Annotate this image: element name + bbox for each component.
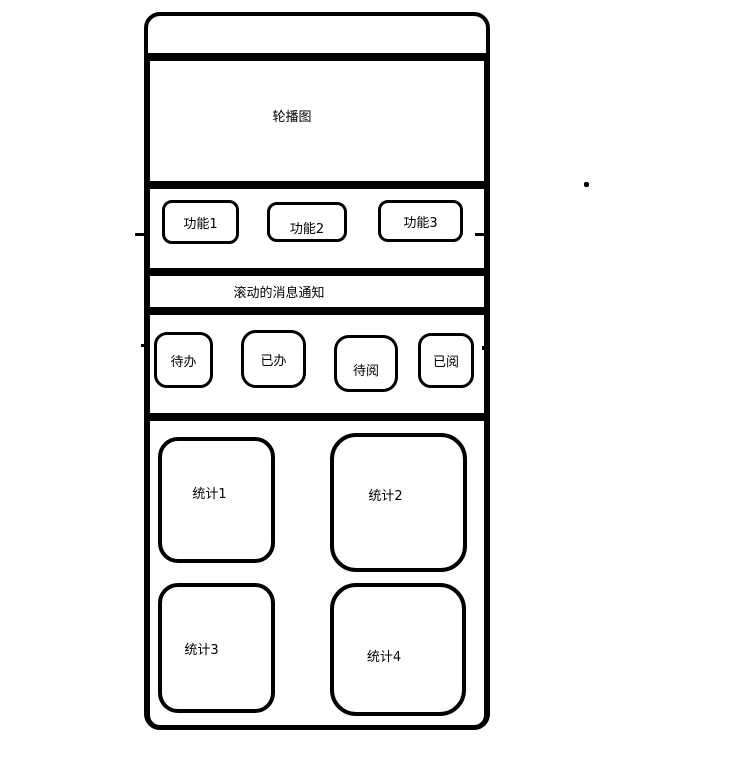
task-tab-read[interactable]: 已阅 [418,333,474,388]
wireframe-canvas: 轮播图 功能1 功能2 功能3 滚动的消息通知 待办 已办 待阅 已阅 统计1 … [0,0,739,768]
task-tab-done[interactable]: 已办 [241,330,306,388]
notice-label: 滚动的消息通知 [233,282,324,301]
stray-dot [584,182,589,187]
task-tab-done-label: 已办 [260,350,286,369]
task-tab-todo-label: 待办 [170,351,196,370]
feature-button-2-label: 功能2 [290,218,324,237]
tick-mark-right-tabs [482,346,490,350]
stat-card-1[interactable]: 统计1 [158,437,275,563]
feature-button-1[interactable]: 功能1 [162,200,239,244]
task-tab-read-label: 已阅 [433,351,459,370]
stat-card-2-label: 统计2 [368,485,402,504]
stat-card-4[interactable]: 统计4 [330,583,466,716]
notice-bar[interactable]: 滚动的消息通知 [146,272,488,311]
carousel-label: 轮播图 [272,106,311,125]
task-tab-to-read[interactable]: 待阅 [334,335,398,392]
feature-button-1-label: 功能1 [183,213,217,232]
task-tab-to-read-label: 待阅 [353,360,379,379]
tick-mark-left-features [135,233,145,236]
feature-button-2[interactable]: 功能2 [267,202,347,242]
tick-mark-left-tabs [141,344,149,347]
tick-mark-right-features [475,233,486,236]
stat-card-3[interactable]: 统计3 [158,583,275,713]
feature-button-3-label: 功能3 [403,212,437,231]
stat-card-3-label: 统计3 [184,639,218,658]
stat-card-4-label: 统计4 [367,646,401,665]
stat-card-1-label: 统计1 [192,483,226,502]
stat-card-2[interactable]: 统计2 [330,433,467,572]
carousel-placeholder[interactable]: 轮播图 [146,57,488,185]
feature-button-3[interactable]: 功能3 [378,200,463,242]
task-tab-todo[interactable]: 待办 [154,332,213,388]
